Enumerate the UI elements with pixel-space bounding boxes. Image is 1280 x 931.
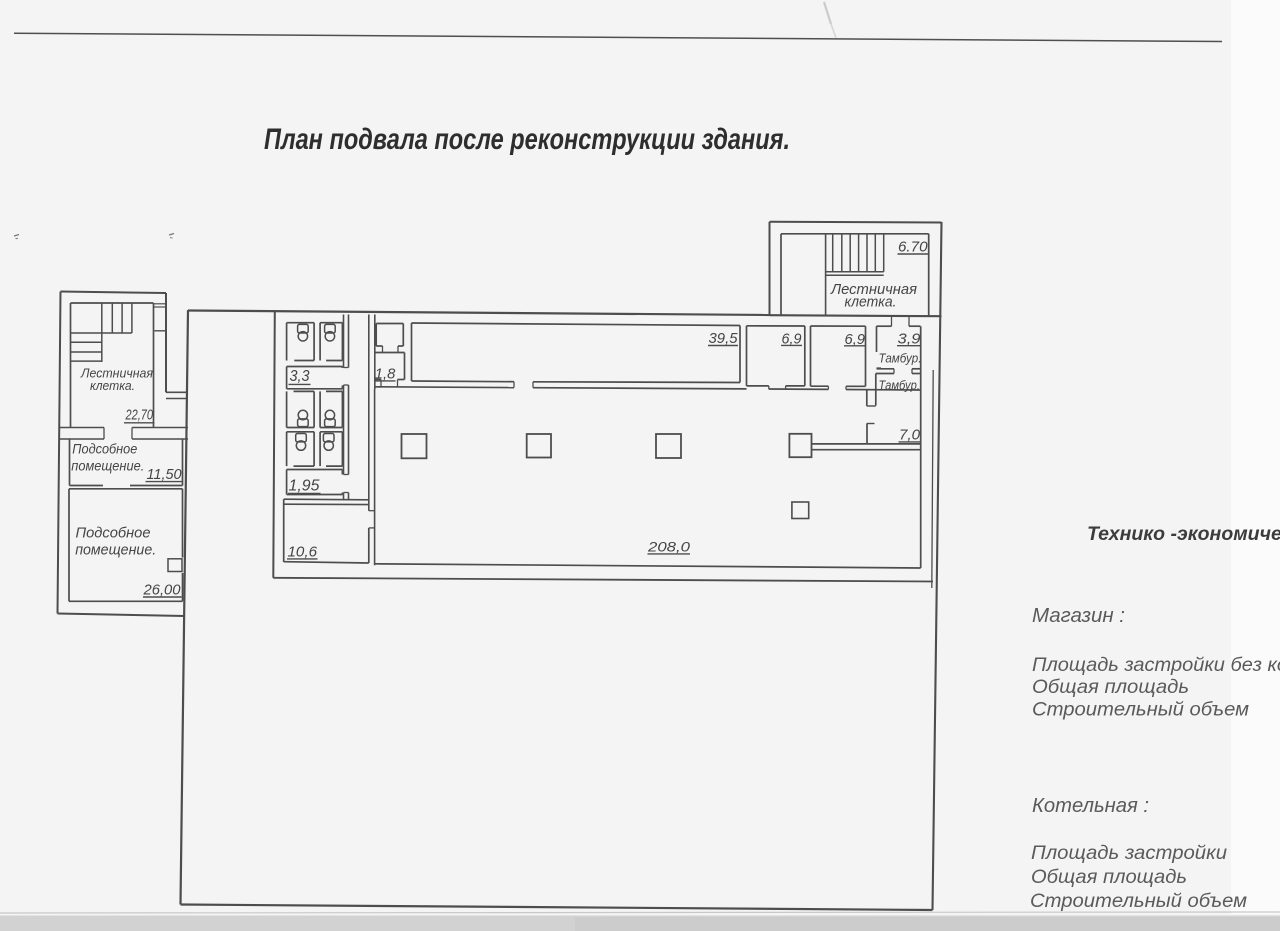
svg-text:Технико -экономические: Технико -экономические xyxy=(1087,523,1280,545)
svg-text:10,6: 10,6 xyxy=(288,544,318,561)
svg-text:3,3: 3,3 xyxy=(290,368,310,385)
svg-text:Общая площадь: Общая площадь xyxy=(1032,677,1189,698)
svg-text:Магазин :: Магазин : xyxy=(1032,604,1125,627)
svg-text:11,50: 11,50 xyxy=(147,467,182,483)
svg-text:помещение.: помещение. xyxy=(71,459,144,474)
svg-text:7,0: 7,0 xyxy=(899,427,921,444)
svg-text:Тамбур.: Тамбур. xyxy=(879,379,921,393)
svg-text:22,70: 22,70 xyxy=(125,408,153,424)
svg-text:1,8: 1,8 xyxy=(375,367,396,383)
svg-text:Площадь застройки: Площадь застройки xyxy=(1031,842,1227,864)
svg-text:Общая площадь: Общая площадь xyxy=(1031,866,1187,888)
svg-text:План подвала после реконструкц: План подвала после реконструкции здания. xyxy=(264,123,790,156)
svg-text:3,9: 3,9 xyxy=(898,331,922,348)
svg-text:Подсобное: Подсобное xyxy=(72,442,137,457)
svg-text:клетка.: клетка. xyxy=(90,378,135,393)
svg-text:Подсобное: Подсобное xyxy=(76,525,151,542)
svg-text:клетка.: клетка. xyxy=(845,294,897,311)
svg-text:помещение.: помещение. xyxy=(75,542,156,559)
svg-text:Тамбур.: Тамбур. xyxy=(879,352,922,366)
svg-text:Строительный объем: Строительный объем xyxy=(1032,700,1249,721)
svg-text:1,95: 1,95 xyxy=(289,478,320,495)
svg-text:Строительный объем: Строительный объем xyxy=(1030,890,1247,912)
svg-text:Котельная :: Котельная : xyxy=(1032,794,1149,817)
svg-text:6.70: 6.70 xyxy=(898,239,928,256)
svg-text:26,00: 26,00 xyxy=(142,583,180,599)
svg-text:Площадь застройки без ко: Площадь застройки без ко xyxy=(1032,655,1280,676)
svg-text:39,5: 39,5 xyxy=(709,330,739,347)
svg-text:208,0: 208,0 xyxy=(647,539,690,555)
